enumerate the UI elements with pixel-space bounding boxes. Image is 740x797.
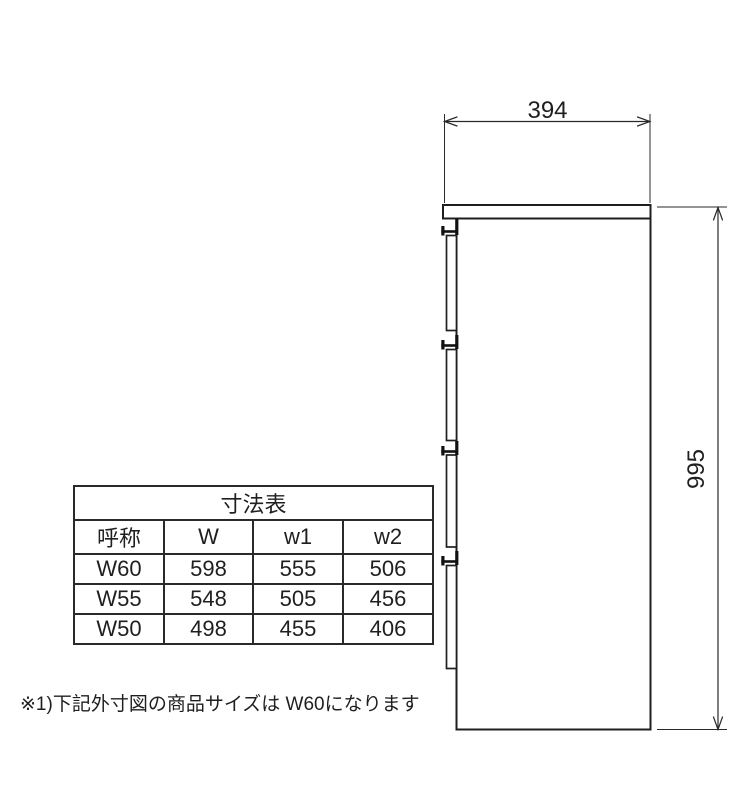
table-title: 寸法表 <box>74 486 433 520</box>
drawer-handle-2 <box>441 335 457 350</box>
drawer-handle-1 <box>441 219 457 236</box>
drawer-front-2 <box>447 350 457 441</box>
page-canvas: 394 995 寸法表 呼称 W w1 w2 <box>0 0 740 797</box>
cabinet-top-panel <box>443 205 651 219</box>
drawer-front-1 <box>447 236 457 331</box>
height-dimension: 995 <box>657 207 727 730</box>
width-dimension-label: 394 <box>527 97 567 124</box>
table-header-row: 呼称 W w1 w2 <box>74 520 433 554</box>
dimension-table: 寸法表 呼称 W w1 w2 W60 598 555 506 W55 548 5… <box>73 485 434 645</box>
column-header-name: 呼称 <box>74 520 164 554</box>
column-header-w: W <box>164 520 253 554</box>
cell-w: 548 <box>164 584 253 614</box>
cell-w2: 406 <box>343 614 433 644</box>
drawer-handle-3 <box>441 441 457 456</box>
cell-name: W50 <box>74 614 164 644</box>
table-title-row: 寸法表 <box>74 486 433 520</box>
cell-name: W60 <box>74 554 164 584</box>
cell-w2: 506 <box>343 554 433 584</box>
cell-w: 498 <box>164 614 253 644</box>
table-row-w50: W50 498 455 406 <box>74 614 433 644</box>
column-header-w1: w1 <box>253 520 343 554</box>
drawer-front-3 <box>447 455 457 547</box>
drawer-front-4 <box>447 566 457 669</box>
cabinet-body <box>457 219 651 730</box>
table-row-w60: W60 598 555 506 <box>74 554 433 584</box>
cell-w1: 505 <box>253 584 343 614</box>
cell-name: W55 <box>74 584 164 614</box>
height-dimension-label: 995 <box>683 449 710 489</box>
drawer-handle-4 <box>441 551 457 566</box>
width-dimension: 394 <box>445 97 651 203</box>
cabinet-dimension-drawing: 394 995 <box>0 0 740 797</box>
cell-w: 598 <box>164 554 253 584</box>
cell-w2: 456 <box>343 584 433 614</box>
column-header-w2: w2 <box>343 520 433 554</box>
table-row-w55: W55 548 505 456 <box>74 584 433 614</box>
footnote: ※1)下記外寸図の商品サイズは W60になります <box>20 692 420 718</box>
cell-w1: 455 <box>253 614 343 644</box>
cell-w1: 555 <box>253 554 343 584</box>
